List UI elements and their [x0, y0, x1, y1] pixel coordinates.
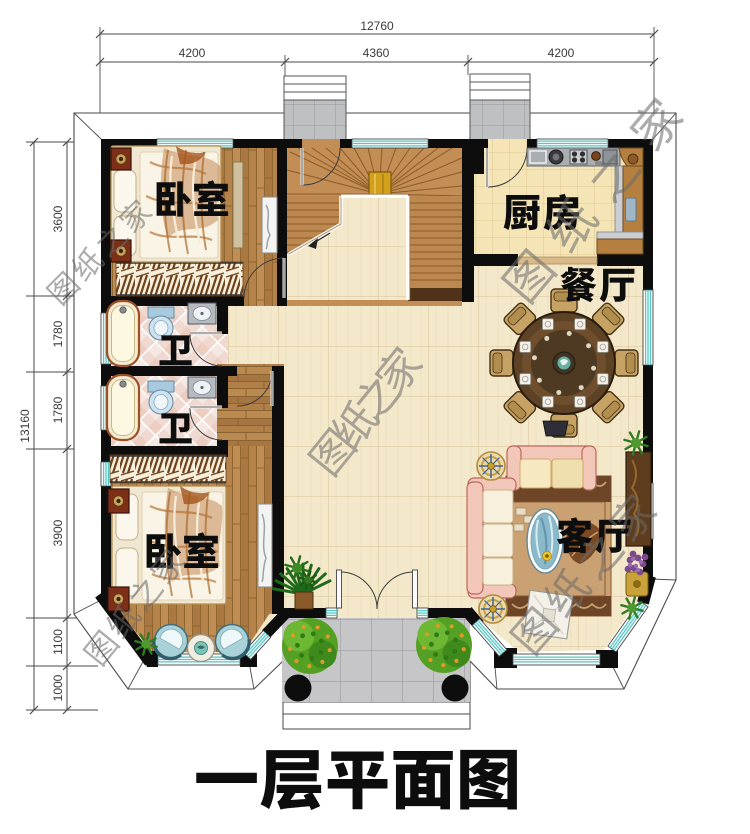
- svg-text:1780: 1780: [51, 396, 65, 423]
- svg-text:4360: 4360: [363, 46, 390, 60]
- svg-text:1780: 1780: [51, 320, 65, 347]
- svg-text:3600: 3600: [51, 205, 65, 232]
- svg-text:1000: 1000: [51, 674, 65, 701]
- svg-text:1100: 1100: [51, 629, 65, 655]
- svg-text:12760: 12760: [360, 19, 394, 33]
- svg-text:3900: 3900: [51, 519, 65, 546]
- svg-text:13160: 13160: [18, 409, 32, 443]
- svg-text:4200: 4200: [548, 46, 575, 60]
- svg-text:4200: 4200: [179, 46, 206, 60]
